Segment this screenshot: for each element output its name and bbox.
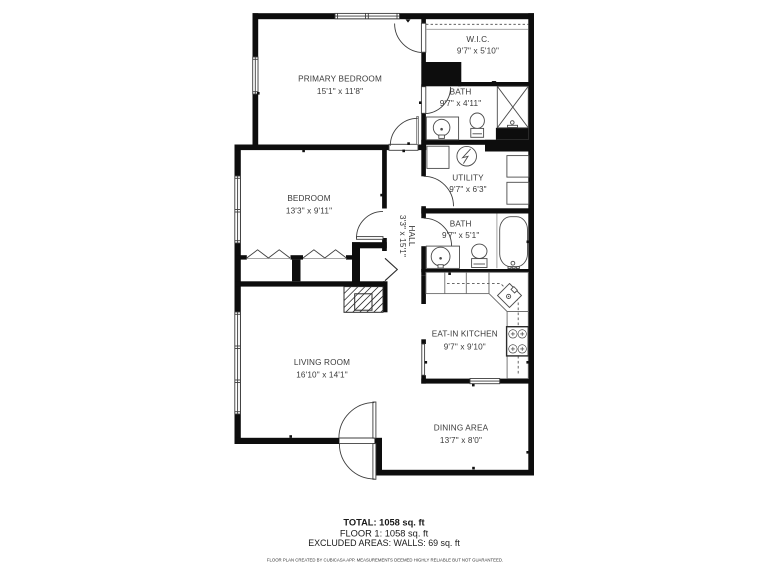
svg-text:BEDROOM: BEDROOM	[287, 194, 330, 203]
svg-text:FLOOR 1: 1058 sq. ft: FLOOR 1: 1058 sq. ft	[340, 528, 429, 538]
svg-text:W.I.C.: W.I.C.	[466, 35, 489, 44]
svg-text:LIVING ROOM: LIVING ROOM	[294, 358, 350, 367]
svg-text:UTILITY: UTILITY	[452, 173, 484, 182]
svg-text:EAT-IN KITCHEN: EAT-IN KITCHEN	[432, 330, 498, 339]
svg-text:3'3" x 15'1": 3'3" x 15'1"	[398, 215, 407, 257]
svg-text:13'3" x 9'11": 13'3" x 9'11"	[286, 207, 332, 216]
svg-text:15'1" x 11'8": 15'1" x 11'8"	[317, 87, 363, 96]
svg-text:13'7" x 8'0": 13'7" x 8'0"	[440, 436, 482, 445]
svg-text:9'7" x 6'3": 9'7" x 6'3"	[449, 185, 486, 194]
svg-text:16'10" x 14'1": 16'10" x 14'1"	[296, 371, 348, 380]
svg-text:FLOOR PLAN CREATED BY CUBICASA: FLOOR PLAN CREATED BY CUBICASA APP. MEAS…	[267, 558, 503, 563]
svg-text:EXCLUDED AREAS: WALLS: 69 sq.: EXCLUDED AREAS: WALLS: 69 sq. ft	[308, 538, 460, 548]
svg-text:HALL: HALL	[407, 225, 416, 246]
svg-text:9'7" x 5'1": 9'7" x 5'1"	[442, 231, 479, 240]
svg-text:9'7" x 4'11": 9'7" x 4'11"	[440, 99, 482, 108]
svg-text:9'7" x 9'10": 9'7" x 9'10"	[444, 343, 486, 352]
svg-text:DINING AREA: DINING AREA	[434, 423, 489, 432]
svg-text:TOTAL: 1058 sq. ft: TOTAL: 1058 sq. ft	[343, 518, 424, 528]
svg-text:9'7" x 5'10": 9'7" x 5'10"	[457, 47, 499, 56]
svg-text:BATH: BATH	[450, 220, 472, 229]
svg-text:BATH: BATH	[450, 88, 472, 97]
svg-text:PRIMARY BEDROOM: PRIMARY BEDROOM	[298, 75, 382, 84]
